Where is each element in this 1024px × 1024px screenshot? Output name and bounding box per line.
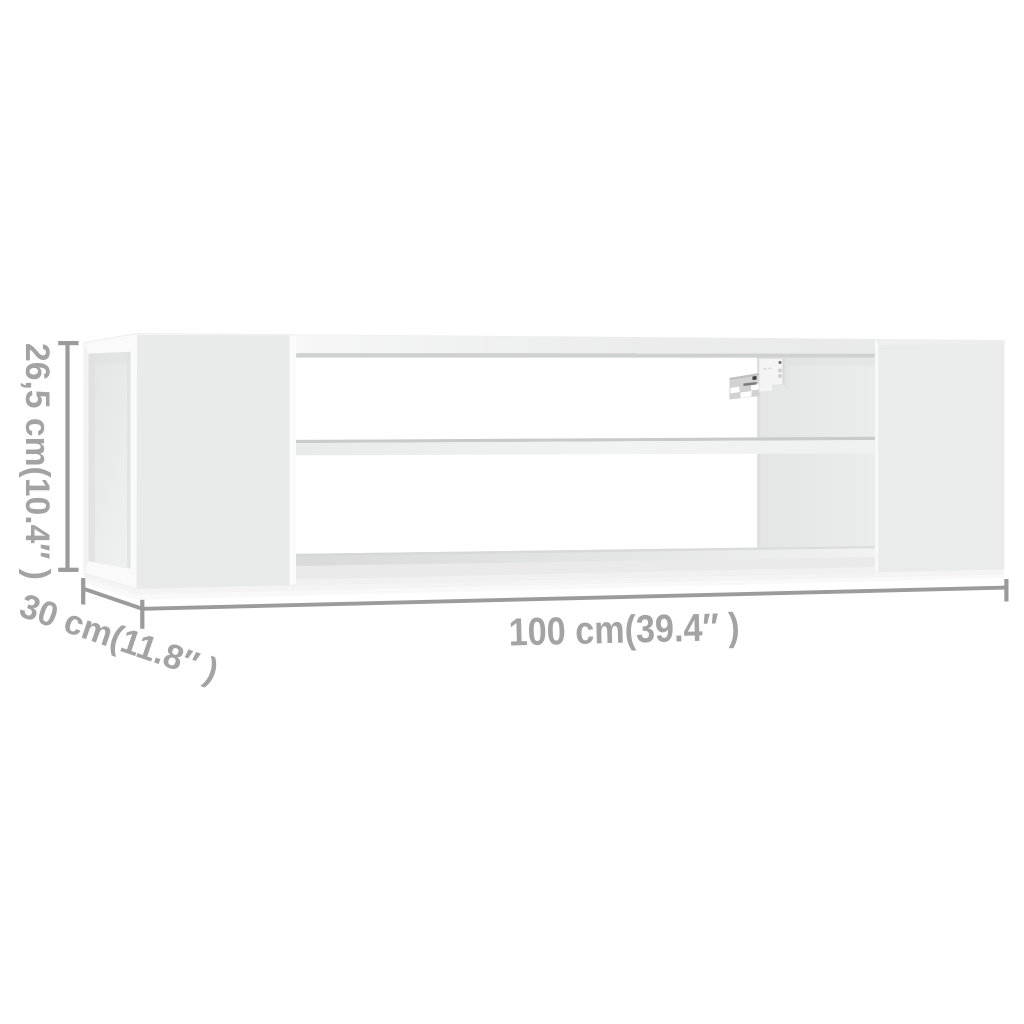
svg-text:26,5 cm(10.4″ ): 26,5 cm(10.4″ ) bbox=[18, 343, 56, 580]
svg-text:100 cm(39.4″ ): 100 cm(39.4″ ) bbox=[508, 606, 740, 655]
